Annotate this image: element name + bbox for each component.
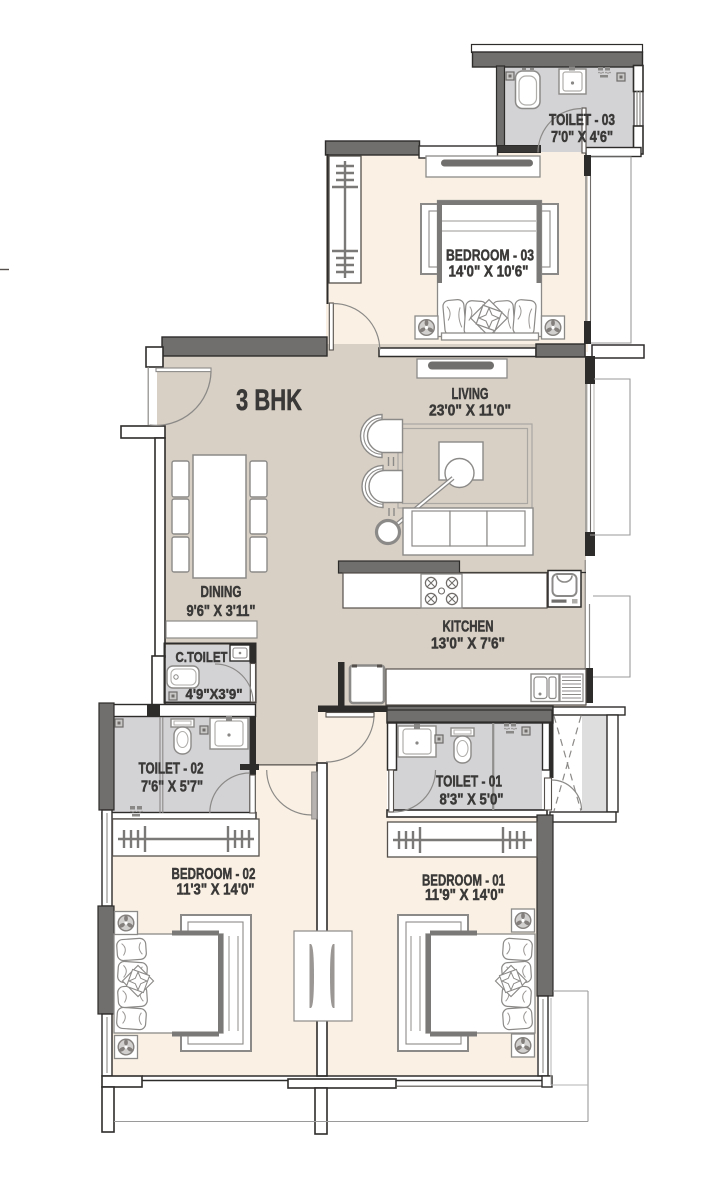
- svg-text:KITCHEN: KITCHEN: [443, 619, 494, 636]
- svg-text:11'9" X 14'0": 11'9" X 14'0": [425, 887, 504, 904]
- svg-text:9'6" X 3'11": 9'6" X 3'11": [187, 603, 256, 620]
- svg-text:23'0" X 11'0": 23'0" X 11'0": [429, 403, 511, 420]
- svg-text:7'0" X 4'6": 7'0" X 4'6": [551, 129, 613, 146]
- svg-text:BEDROOM - 03: BEDROOM - 03: [446, 248, 534, 265]
- svg-text:TOILET - 03: TOILET - 03: [549, 112, 615, 129]
- svg-text:TOILET - 01: TOILET - 01: [436, 774, 502, 791]
- svg-text:11'3" X 14'0": 11'3" X 14'0": [177, 882, 255, 899]
- svg-text:BEDROOM - 02: BEDROOM - 02: [172, 866, 256, 883]
- svg-text:8'3" X 5'0": 8'3" X 5'0": [440, 792, 504, 809]
- svg-text:13'0" X 7'6": 13'0" X 7'6": [431, 636, 505, 653]
- svg-text:14'0" X 10'6": 14'0" X 10'6": [449, 264, 529, 281]
- svg-text:C.TOILET: C.TOILET: [176, 649, 228, 666]
- svg-text:4'9"X3'9": 4'9"X3'9": [186, 686, 243, 703]
- svg-text:LIVING: LIVING: [452, 386, 489, 403]
- svg-text:TOILET - 02: TOILET - 02: [139, 761, 204, 778]
- svg-text:7'6" X 5'7": 7'6" X 5'7": [141, 779, 203, 796]
- svg-text:3 BHK: 3 BHK: [236, 384, 302, 417]
- svg-text:DINING: DINING: [201, 584, 242, 601]
